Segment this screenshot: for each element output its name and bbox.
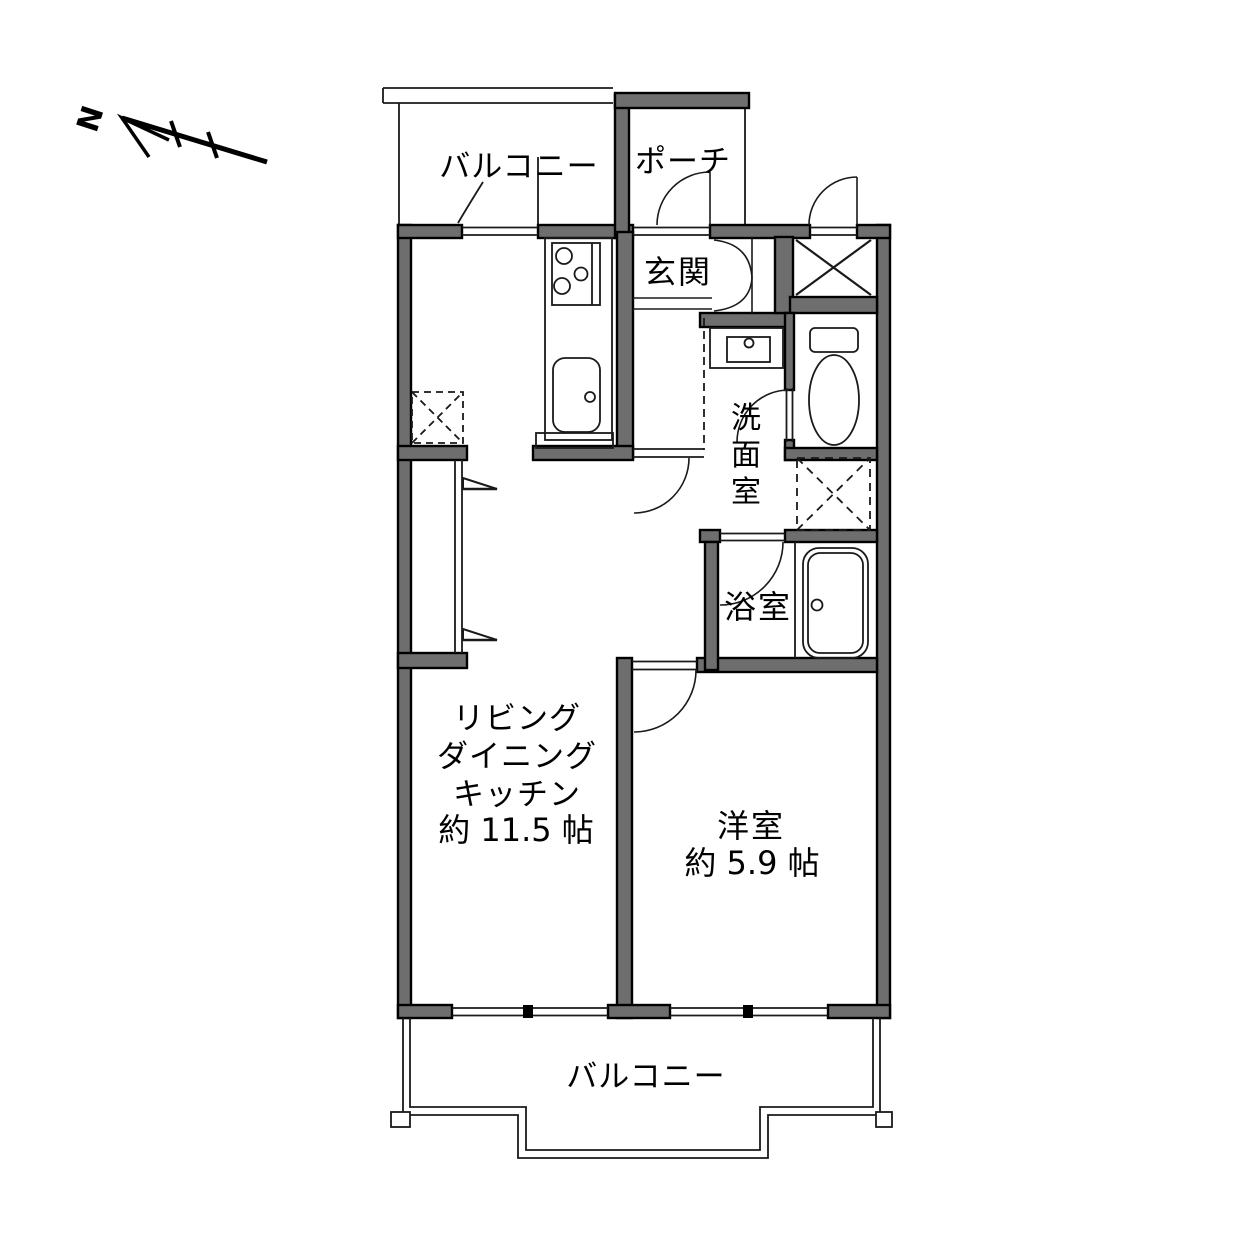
pipe-shaft	[796, 240, 871, 295]
svg-text:ダイニング: ダイニング	[437, 739, 597, 775]
wall-bath-left	[705, 542, 718, 670]
wall-toilet-left-a	[785, 313, 794, 390]
stove-burner-2	[575, 268, 588, 281]
stove-burner-1	[556, 248, 572, 264]
stove-burner-3	[554, 278, 570, 294]
ldk-storage-niche	[412, 392, 497, 653]
toilet-fixture	[809, 328, 859, 445]
washroom-label: 洗 面 室	[731, 401, 761, 510]
wall-bottom-a	[398, 1005, 452, 1018]
shoe-closet-door-arc-top	[714, 240, 752, 278]
balcony-top-label: バルコニー	[439, 149, 598, 185]
wall-kitchen-entrance	[617, 232, 633, 458]
svg-text:洋室: 洋室	[717, 807, 785, 845]
hall-door-arc	[634, 458, 689, 513]
vanity-basin	[727, 337, 770, 362]
wall-porch-top	[615, 93, 749, 108]
toilet-bowl	[809, 355, 859, 445]
balcony-corner-left	[391, 1112, 410, 1127]
wall-bath-top-left	[700, 530, 720, 542]
storage-arrow-2	[463, 629, 497, 640]
svg-text:面: 面	[731, 438, 761, 473]
washer-space	[797, 458, 870, 530]
wall-exterior-left	[398, 225, 411, 1018]
wall-exterior-right	[877, 225, 890, 1018]
svg-text:キッチン: キッチン	[453, 777, 581, 813]
openings	[452, 228, 857, 1016]
storage-arrow-1	[463, 478, 497, 489]
kitchen-counter	[536, 238, 613, 448]
svg-text:室: 室	[731, 475, 761, 510]
porch-label: ポーチ	[635, 144, 731, 180]
bathroom-label: 浴室	[724, 588, 792, 626]
bathtub-inner	[808, 553, 863, 653]
wall-porch-west	[615, 95, 629, 238]
north-arrow	[122, 118, 267, 162]
svg-text:約 11.5 帖: 約 11.5 帖	[438, 811, 594, 849]
window-mullion-1	[523, 1005, 533, 1018]
north-arrow-shaft	[122, 118, 267, 162]
north-label: N	[70, 102, 111, 137]
floorplan-drawing: N	[0, 0, 1252, 1252]
svg-text:約 5.9 帖: 約 5.9 帖	[684, 844, 819, 882]
floorplan-canvas: N	[0, 0, 1252, 1252]
ldk-label: リビング ダイニング キッチン 約 11.5 帖	[437, 701, 597, 849]
shoe-closet-door-arc-bottom	[714, 278, 752, 311]
wall-entrance-washroom	[700, 313, 790, 327]
wall-bath-top-right	[785, 530, 877, 542]
balcony-bottom-label: バルコニー	[566, 1059, 725, 1095]
wall-bottom-b	[608, 1005, 670, 1018]
entrance-step	[633, 298, 712, 309]
window-mullion-2	[743, 1005, 753, 1018]
kitchen-sink	[553, 358, 600, 432]
bathroom-fixtures	[795, 542, 868, 658]
wall-niche-north	[398, 446, 467, 460]
svg-text:洗: 洗	[731, 401, 761, 436]
balcony-corner-right	[876, 1112, 892, 1127]
wall-westroom-top	[697, 658, 877, 672]
bathtub-drain	[812, 600, 823, 611]
sink-drain	[585, 392, 595, 402]
entrance-label: 玄関	[644, 253, 712, 291]
meterbox-door-arc	[809, 177, 857, 225]
western-room-label: 洋室 約 5.9 帖	[684, 807, 819, 882]
wall-ldk-westroom	[617, 658, 632, 1018]
toilet-tank	[810, 328, 858, 352]
wall-top-d	[857, 225, 890, 238]
svg-text:リビング: リビング	[453, 701, 581, 737]
westroom-door-arc	[634, 670, 696, 732]
fridge-space	[412, 392, 463, 443]
vanity-faucet	[745, 339, 754, 348]
wall-niche-south	[398, 653, 467, 668]
wall-bottom-c	[828, 1005, 890, 1018]
wall-top-c	[710, 225, 810, 238]
wall-shaft-bottom	[790, 297, 877, 313]
wall-top-a	[398, 225, 462, 238]
balcony-top-leader	[458, 182, 483, 223]
